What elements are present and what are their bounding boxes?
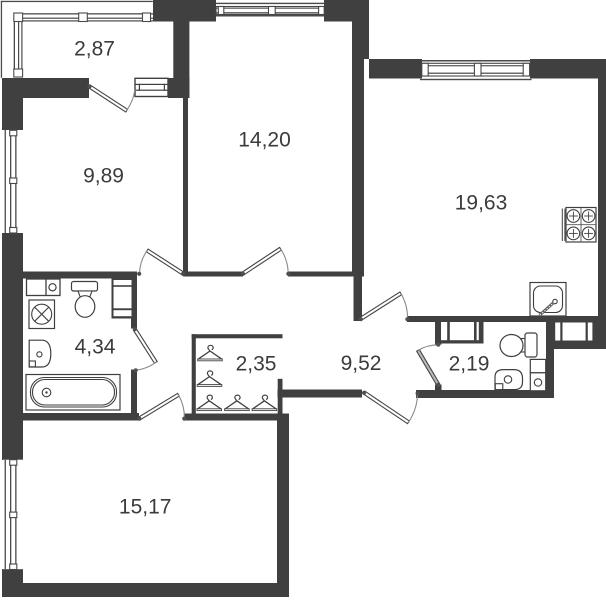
svg-text:2,35: 2,35 — [236, 353, 277, 376]
svg-text:2,87: 2,87 — [74, 38, 115, 61]
svg-text:9,89: 9,89 — [83, 165, 124, 188]
svg-text:15,17: 15,17 — [119, 496, 172, 519]
svg-text:14,20: 14,20 — [238, 129, 291, 152]
svg-text:2,19: 2,19 — [449, 353, 490, 376]
svg-text:9,52: 9,52 — [341, 352, 382, 375]
svg-text:19,63: 19,63 — [455, 192, 508, 215]
svg-text:4,34: 4,34 — [75, 336, 116, 359]
